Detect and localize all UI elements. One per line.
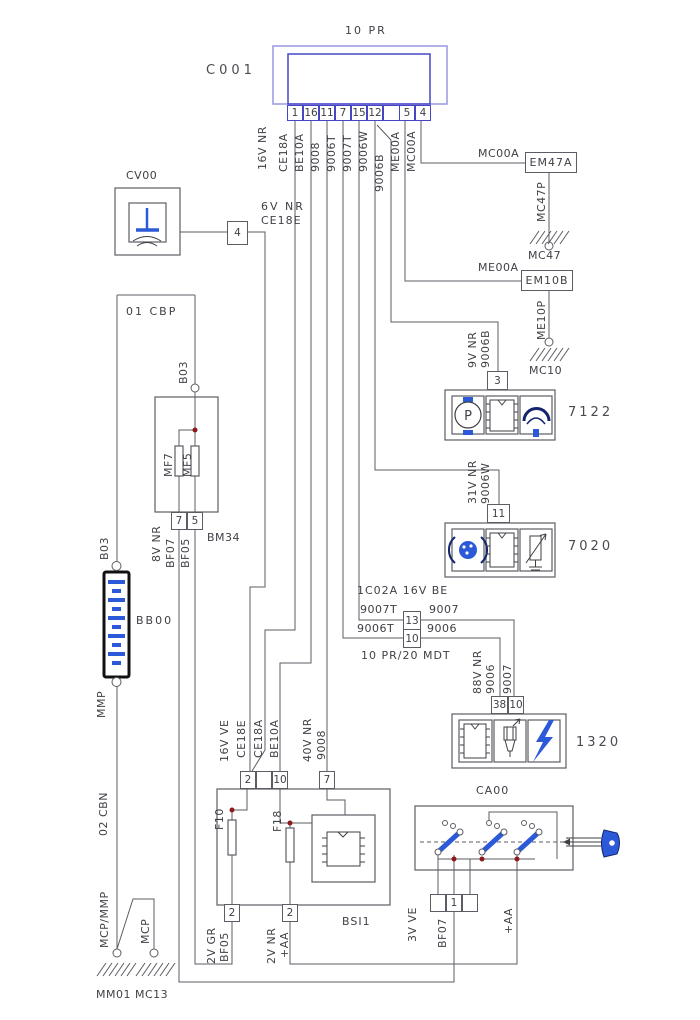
gauge-2vnr-label: 2V NR (265, 924, 278, 964)
wire-9007-label: 9007 (429, 603, 459, 616)
comp7122-pin-3: 3 (487, 371, 508, 390)
ignition-switch-icon (420, 821, 572, 856)
bsi-top-pin-7: 7 (319, 771, 335, 789)
mm01-terminal (113, 949, 121, 957)
wire-9007t-drop-label: 9007T (341, 130, 354, 172)
wire-plusaa-ca00-label: +AA (502, 902, 515, 934)
gauge-16vnr-label: 16V NR (256, 124, 269, 170)
conn1c02a-title: 1C02A 16V BE (357, 584, 448, 597)
wire-ce18e (180, 232, 265, 771)
mc47-label: MC47 (528, 249, 561, 262)
mc00a-label: MC00A (478, 147, 519, 160)
chip-icon-1320 (460, 724, 490, 758)
wire-me00a (405, 121, 521, 281)
em47a-tag: EM47A (525, 152, 577, 173)
c001-pin-5: 5 (399, 105, 415, 121)
wire-plus-aa (290, 864, 517, 964)
wire-9007t (359, 121, 403, 620)
gauge-8vnr-label: 8V NR (150, 522, 163, 562)
fuse-mf5-label: MF5 (181, 447, 194, 477)
parking-indicator-icon: P (455, 397, 481, 435)
key-icon (563, 830, 620, 857)
wire-mcpmmp-label: MCP/MMP (98, 884, 111, 948)
svg-text:P: P (464, 409, 472, 424)
comp7020-label: 7020 (568, 540, 613, 553)
fuse-f18-icon (286, 828, 294, 862)
wire-ce18e-label: CE18E (235, 714, 248, 758)
wire-me10p-label: ME10P (535, 296, 548, 340)
wire-9006b-drop-label: 9006B (373, 146, 386, 192)
gauge-88vnr-label: 88V NR (471, 650, 484, 694)
injector-icon (504, 719, 520, 757)
fuse-f10-icon (228, 820, 236, 855)
comp1320-label: 1320 (576, 736, 621, 749)
cv00-wire-label: CE18E (261, 214, 302, 227)
wiring-diagram: P (0, 0, 700, 1020)
bsi-top-pin-blank (256, 771, 272, 789)
bsi-bottom-pin-2a: 2 (224, 904, 240, 922)
c001-connector (273, 46, 447, 104)
wire-9006w-drop-label: 9006W (357, 128, 370, 172)
gauge-3vve-label: 3V VE (406, 900, 419, 942)
fuse-mf7-label: MF7 (162, 447, 175, 477)
c001-pin-11: 11 (319, 105, 335, 121)
wire-mmp-label: MMP (95, 688, 108, 718)
bsi1-label: BSI1 (342, 915, 371, 928)
ca00-label: CA00 (476, 784, 509, 797)
wire-9008-label: 9008 (309, 138, 322, 172)
ca00-pin-blank-right (462, 894, 478, 912)
wire-be10a-bsi-label: BE10A (268, 714, 281, 758)
wire-be10a-label: BE10A (293, 130, 306, 172)
b03-left-label: B03 (98, 532, 111, 560)
ground-mc10-icon (530, 348, 569, 361)
cv00-pin-4: 4 (227, 221, 248, 245)
harness-01cbp-label: 01 CBP (126, 305, 177, 318)
wire-bf07-label: BF07 (164, 530, 177, 568)
harness-10pr-label: 10 PR (345, 24, 387, 37)
cv00-label: CV00 (126, 169, 157, 182)
bm34-pin-5: 5 (187, 512, 203, 530)
chip-icon-7122 (486, 400, 518, 431)
wire-plusaa-bsi-label: +AA (278, 926, 291, 958)
rheostat-icon (526, 534, 546, 570)
c001-pin-16: 16 (303, 105, 319, 121)
gauge-2vgr-label: 2V GR (205, 924, 218, 964)
c001-pin-4: 4 (415, 105, 431, 121)
mc13-terminal (150, 949, 158, 957)
gauge-9vnr-label: 9V NR (466, 328, 479, 368)
ground-mc13-icon (136, 963, 175, 976)
wire-b03-bm34 (179, 295, 195, 513)
cv00-gauge-label: 6V NR (261, 200, 305, 213)
wire-bf05-label: BF05 (179, 530, 192, 568)
wire-9006-drop-label: 9006 (484, 652, 497, 694)
wire-me00a-drop-label: ME00A (389, 128, 402, 172)
wire-9007t-label: 9007T (360, 603, 397, 616)
b03-node (191, 384, 199, 392)
c001-pin-15: 15 (351, 105, 367, 121)
wire-9006-label: 9006 (427, 622, 457, 635)
chip-icon-bsi (322, 832, 365, 866)
chip-icon-7020 (486, 533, 518, 567)
bb00-label: BB00 (136, 614, 173, 627)
gauge-16vve-label: 16V VE (218, 716, 231, 762)
b03-right-label: B03 (177, 356, 190, 384)
em10b-tag: EM10B (521, 270, 573, 291)
wire-9006w-label: 9006W (479, 458, 492, 504)
abs-icon (449, 537, 487, 563)
wire-mc47p-label: MC47P (535, 178, 548, 222)
fuse-f18-label: F18 (271, 802, 284, 832)
bm34-label: BM34 (207, 531, 240, 544)
cv00-device-icon (133, 208, 161, 246)
wire-9008-bsi-label: 9008 (315, 724, 328, 760)
wire-bf05-bsi-label: BF05 (218, 924, 231, 962)
mc10-label: MC10 (529, 364, 562, 377)
comp7122-label: 7122 (568, 406, 613, 419)
wire-9006t (343, 121, 403, 638)
gauge-icon (524, 409, 549, 438)
wire-9007-drop-label: 9007 (501, 652, 514, 694)
conn1c02a-pin-13: 13 (403, 611, 421, 630)
bm34-pin-7: 7 (171, 512, 187, 530)
bsi-top-pin-2: 2 (240, 771, 256, 789)
bsi1-box (217, 789, 390, 905)
wire-9006b-label: 9006B (479, 326, 492, 368)
bsi-top-pin-10: 10 (272, 771, 288, 789)
bsi-bottom-pin-2b: 2 (282, 904, 298, 922)
mm01-label: MM01 (96, 988, 131, 1001)
conn1c02a-pin-10: 10 (403, 629, 421, 648)
mc13-label: MC13 (135, 988, 168, 1001)
wire-9006t-drop-label: 9006T (325, 130, 338, 172)
c001-pin-1: 1 (287, 105, 303, 121)
wire-bf07-ca00-label: BF07 (436, 910, 449, 948)
harness-02cbn-label: 02 CBN (97, 786, 110, 836)
fuse-f10-label: F10 (213, 800, 226, 830)
comp1320-pin-38: 38 (491, 696, 508, 714)
me00a-label: ME00A (478, 261, 518, 274)
gauge-40vnr-label: 40V NR (301, 714, 314, 762)
c001-label: C001 (206, 64, 256, 77)
gauge-31vnr-label: 31V NR (466, 458, 479, 504)
wire-ce18a-bsi-label: CE18A (252, 714, 265, 758)
comp7020-pin-11: 11 (487, 504, 510, 523)
wire-bsi-pin7-chip (327, 789, 345, 815)
ground-mm01-icon (97, 963, 136, 976)
comp1320-pin-10: 10 (508, 696, 524, 714)
lightning-icon (533, 720, 554, 762)
wire-mc00a-drop-label: MC00A (405, 128, 418, 172)
battery-icon (104, 562, 129, 687)
c001-pin-7: 7 (335, 105, 351, 121)
wire-ce18a-label: CE18A (277, 130, 290, 172)
harness-mdt-note: 10 PR/20 MDT (361, 649, 451, 662)
wire-9006w (375, 121, 499, 504)
wire-9006t-label: 9006T (357, 622, 394, 635)
wire-mcp-label: MCP (139, 908, 152, 944)
c001-pin-12: 12 (367, 105, 383, 121)
